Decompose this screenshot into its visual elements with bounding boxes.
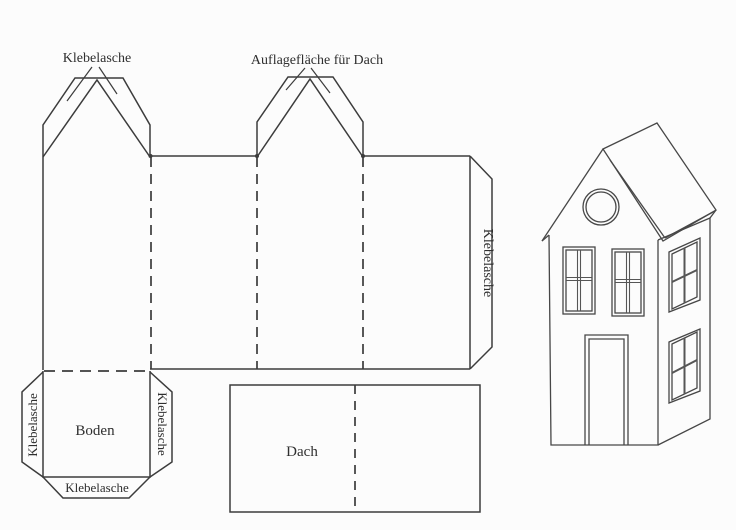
middle-gable-glue-tab-outline	[257, 77, 363, 157]
house-gable-roofline	[542, 149, 603, 241]
pointer-middle-a	[286, 68, 305, 90]
label-pointer-lines	[67, 67, 330, 101]
unfolded-template	[22, 67, 492, 512]
left-gable-roof-edges	[43, 80, 150, 157]
pointer-left-b	[99, 67, 117, 94]
side-window-upper	[669, 238, 700, 312]
round-gable-window-inner	[586, 192, 616, 222]
junction-dot	[361, 154, 365, 158]
label-klebelasche-right-tab: Klebelasche	[480, 229, 495, 297]
label-klebelasche-floor-bottom-tab: Klebelasche	[65, 480, 129, 495]
window-mullions	[566, 250, 592, 311]
label-auflageflaeche-fuer-dach: Auflagefläche für Dach	[251, 53, 383, 68]
house-roof-front-edge-inner	[610, 160, 665, 238]
window-mullions	[615, 252, 641, 313]
label-klebelasche-floor-right-tab: Klebelasche	[155, 392, 170, 456]
junction-dot	[149, 154, 153, 158]
label-boden: Boden	[75, 423, 115, 439]
label-dach: Dach	[286, 444, 318, 460]
template-drawing: Klebelasche Auflagefläche für Dach Klebe…	[0, 0, 736, 530]
front-window-right	[612, 249, 644, 316]
middle-gable-roof-edges	[257, 79, 363, 157]
left-gable-glue-tab-outline	[43, 78, 150, 370]
mullion-horizontal	[566, 278, 592, 281]
front-door	[585, 335, 628, 445]
side-window-lower	[669, 329, 700, 403]
door-frame-outer	[585, 335, 628, 445]
pointer-middle-b	[311, 68, 330, 93]
window-mullions	[672, 338, 697, 394]
label-klebelasche-floor-left-tab: Klebelasche	[25, 393, 40, 457]
front-window-left	[563, 247, 595, 314]
label-klebelasche-top: Klebelasche	[63, 51, 131, 66]
door-frame-inner	[589, 339, 624, 445]
papercraft-house-template-sheet: Klebelasche Auflagefläche für Dach Klebe…	[0, 0, 736, 530]
window-mullions	[672, 248, 697, 303]
house-front-wall	[549, 235, 658, 445]
assembled-house-preview	[542, 123, 716, 445]
fold-lines	[151, 157, 363, 369]
mullion-horizontal	[615, 280, 641, 283]
junction-dot	[255, 154, 259, 158]
round-gable-window-outer	[583, 189, 619, 225]
